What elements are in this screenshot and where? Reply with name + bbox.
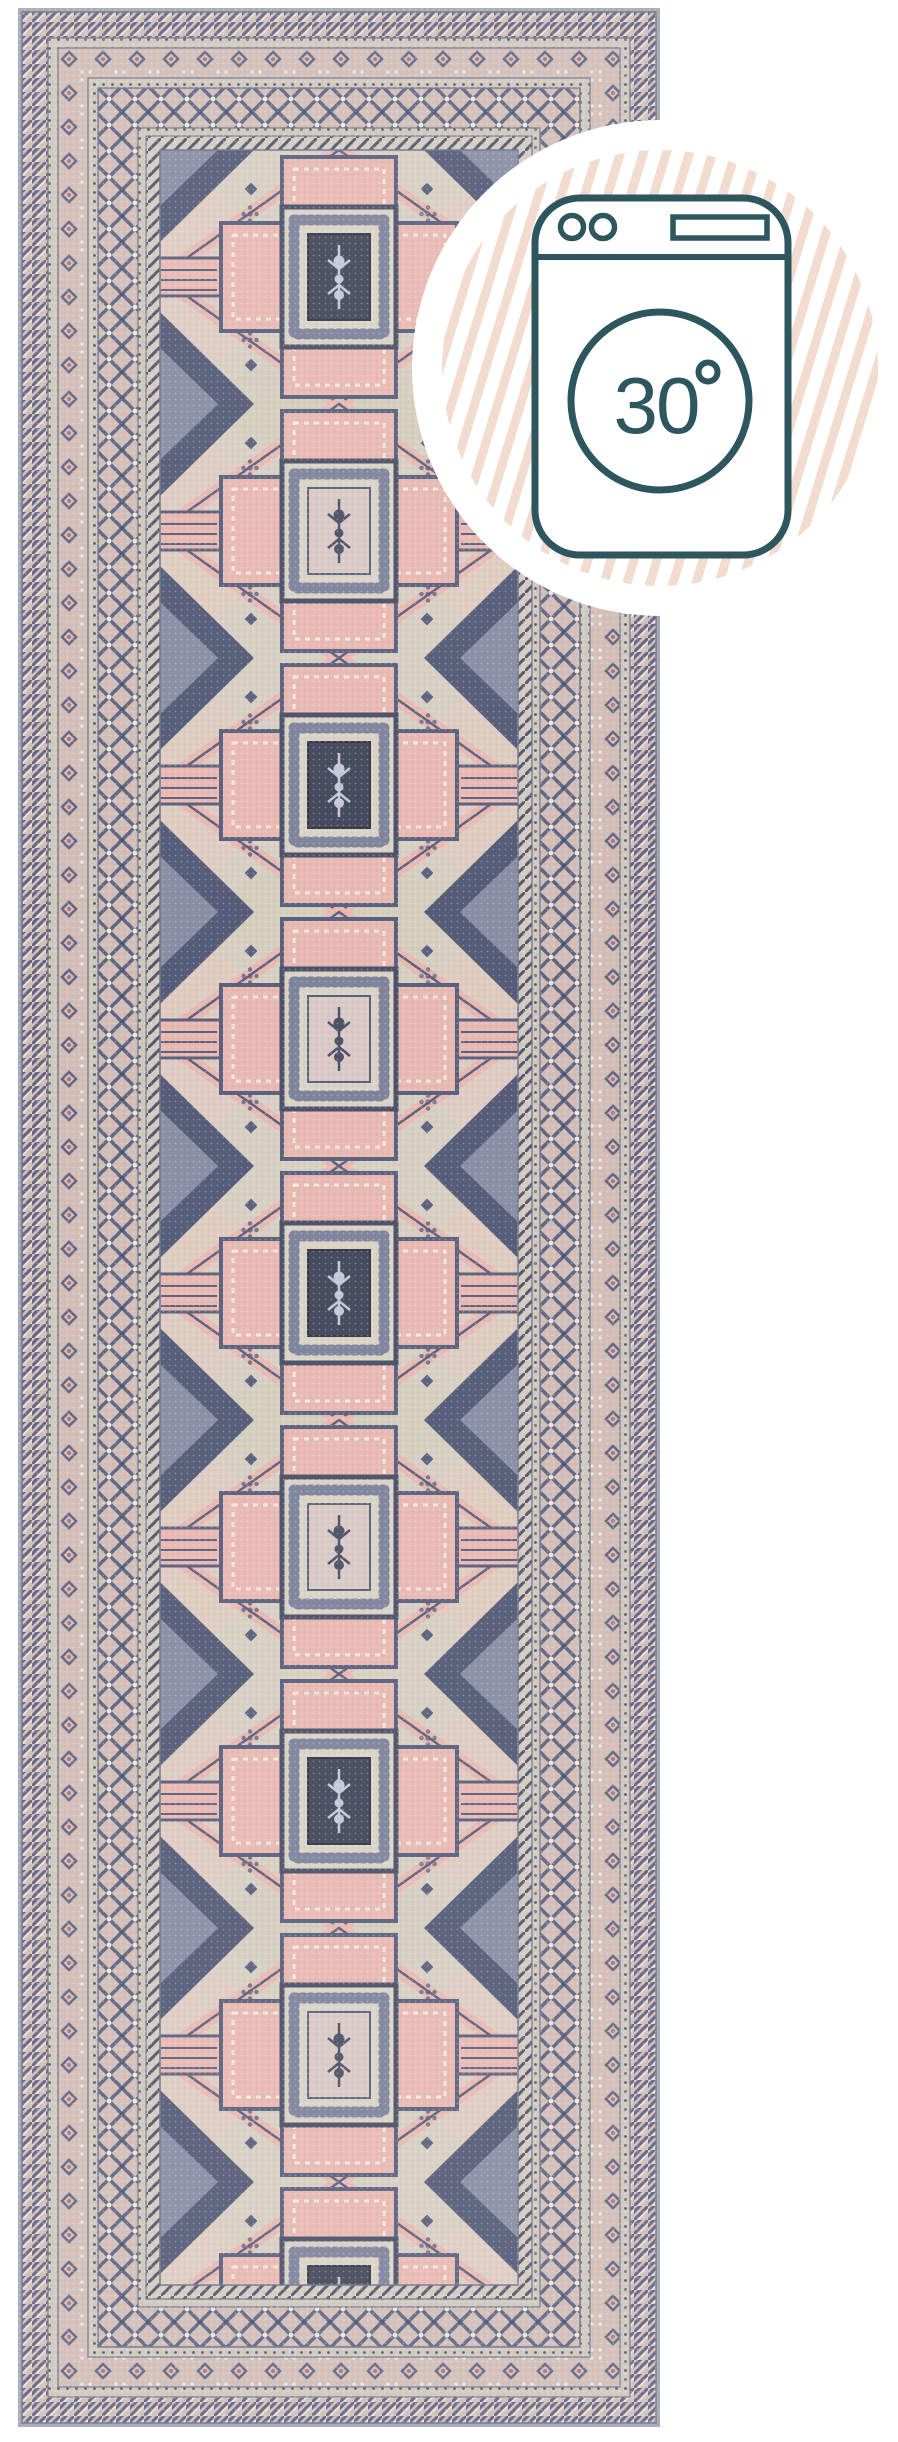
temperature-label: 30 [614, 361, 699, 450]
product-image: 30 [0, 0, 898, 2442]
washable-30-badge: 30 [412, 120, 898, 616]
washing-machine-icon: 30 [412, 120, 898, 616]
